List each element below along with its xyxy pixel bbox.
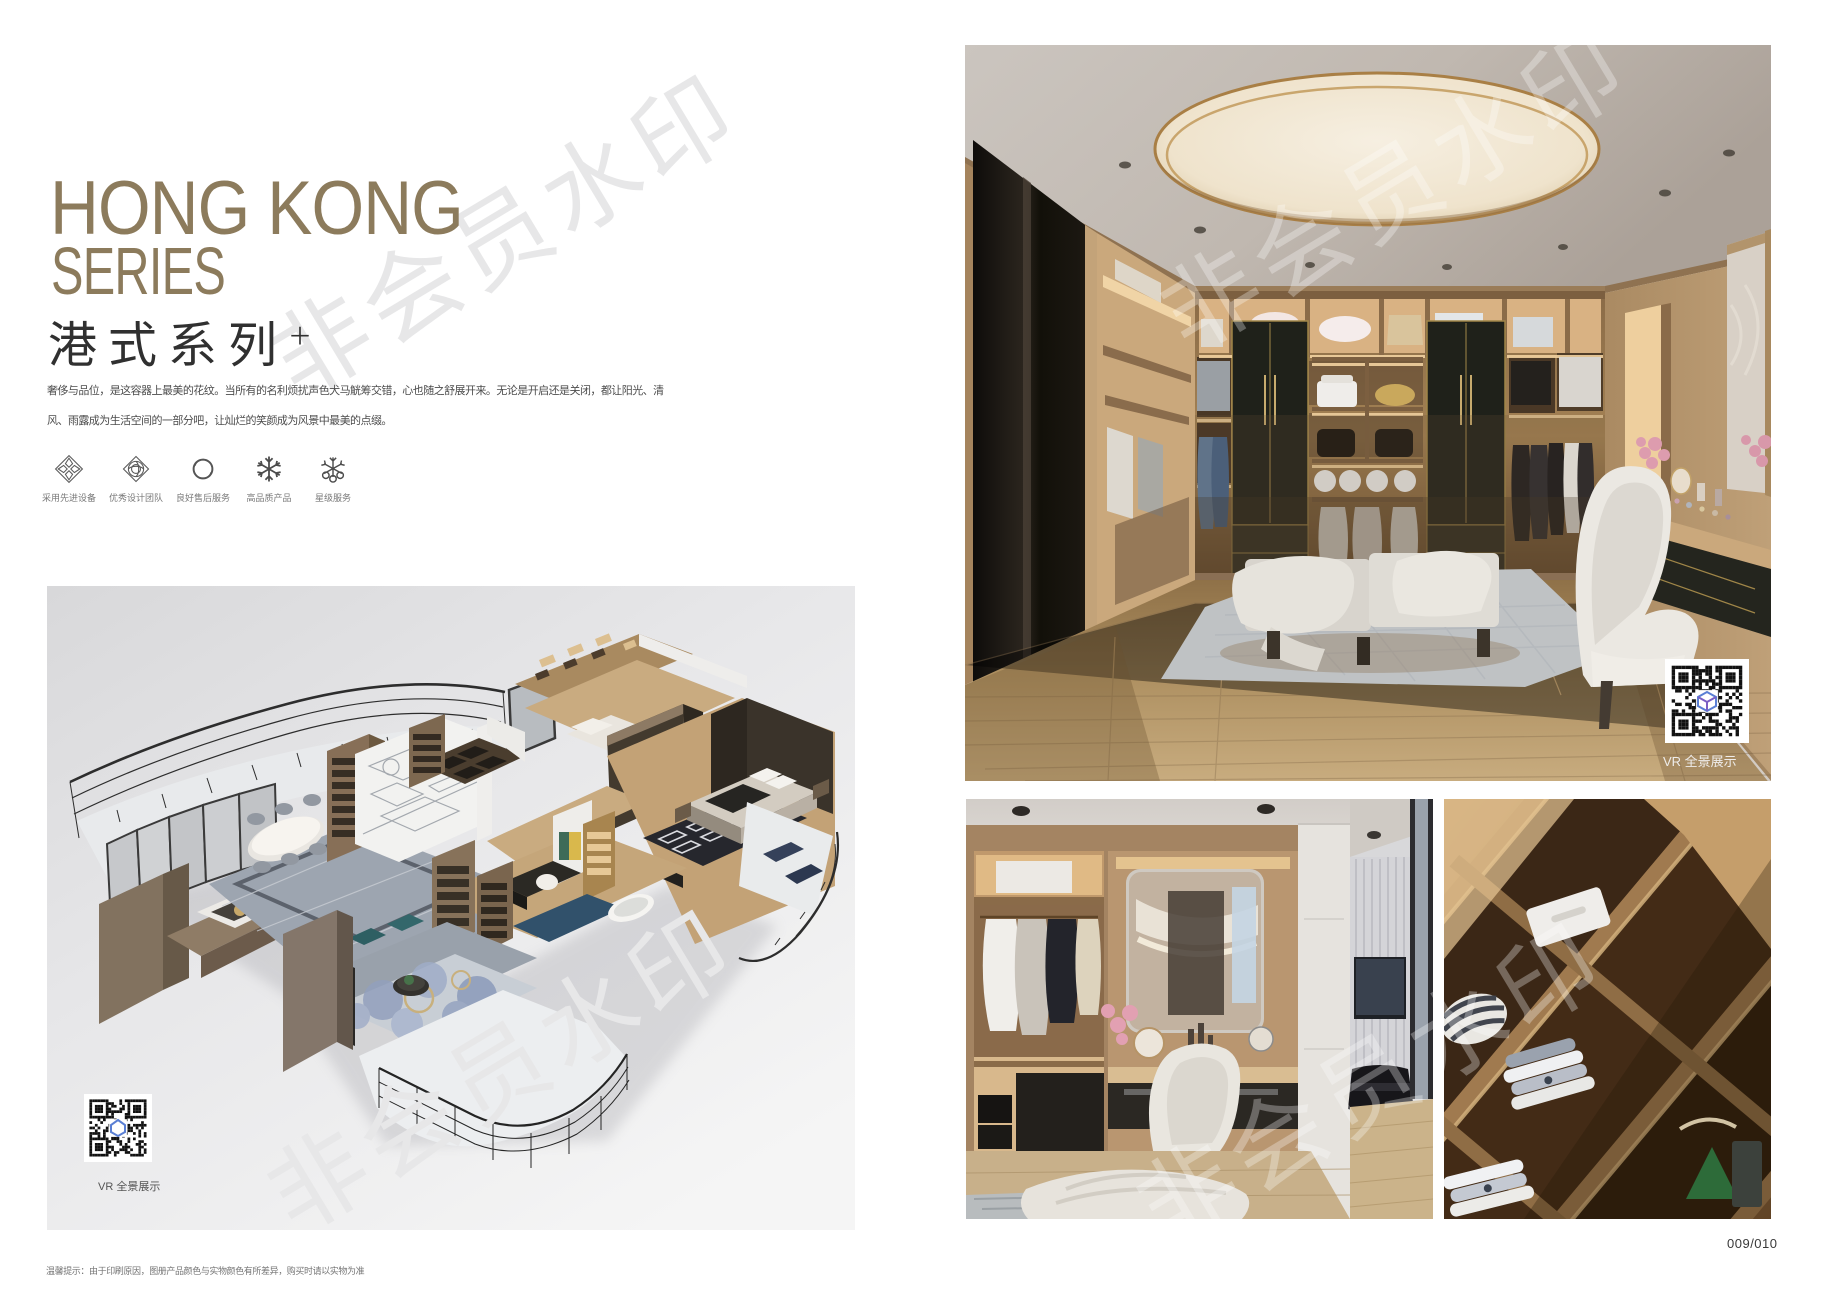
svg-text:VR 全景展示: VR 全景展示	[1663, 754, 1737, 769]
svg-text:VR 全景展示: VR 全景展示	[98, 1179, 160, 1193]
